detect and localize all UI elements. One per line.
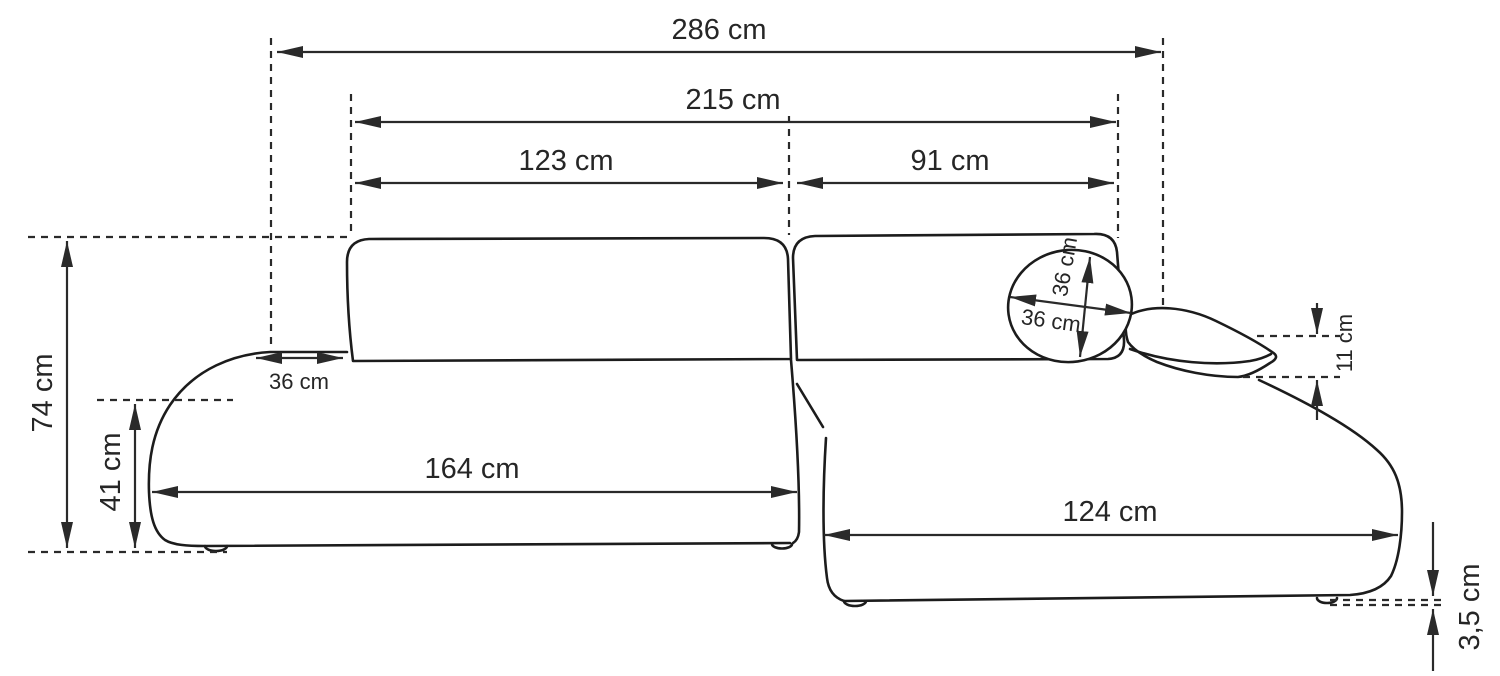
label-backrest-left-width: 123 cm xyxy=(518,145,613,177)
left-section-body xyxy=(149,352,790,546)
backrest-cushion-left xyxy=(347,238,791,361)
chaise-body-outline xyxy=(844,380,1402,601)
diagram-canvas: 286 cm 215 cm 123 cm 91 cm 74 cm 41 cm 3… xyxy=(0,0,1500,671)
label-armrest-top-depth: 36 cm xyxy=(269,369,329,394)
label-overall-height: 74 cm xyxy=(27,354,59,433)
label-arm-cushion-thickness: 11 cm xyxy=(1332,314,1357,372)
corner-crease xyxy=(797,384,823,427)
label-left-seat-length: 164 cm xyxy=(424,453,519,485)
label-total-width: 286 cm xyxy=(671,14,766,46)
label-backrest-total-width: 215 cm xyxy=(685,84,780,116)
armrest-cushion xyxy=(1126,308,1276,377)
sofa-leg-front-mid xyxy=(772,544,792,549)
chaise-front-left-edge xyxy=(824,438,845,601)
sofa-outline-group xyxy=(149,234,1402,606)
label-backrest-right-width: 91 cm xyxy=(911,145,990,177)
sofa-dimension-diagram: 286 cm 215 cm 123 cm 91 cm 74 cm 41 cm 3… xyxy=(0,0,1500,671)
label-leg-height: 3,5 cm xyxy=(1454,563,1486,650)
label-seat-height: 41 cm xyxy=(95,433,127,512)
label-chaise-length: 124 cm xyxy=(1062,496,1157,528)
